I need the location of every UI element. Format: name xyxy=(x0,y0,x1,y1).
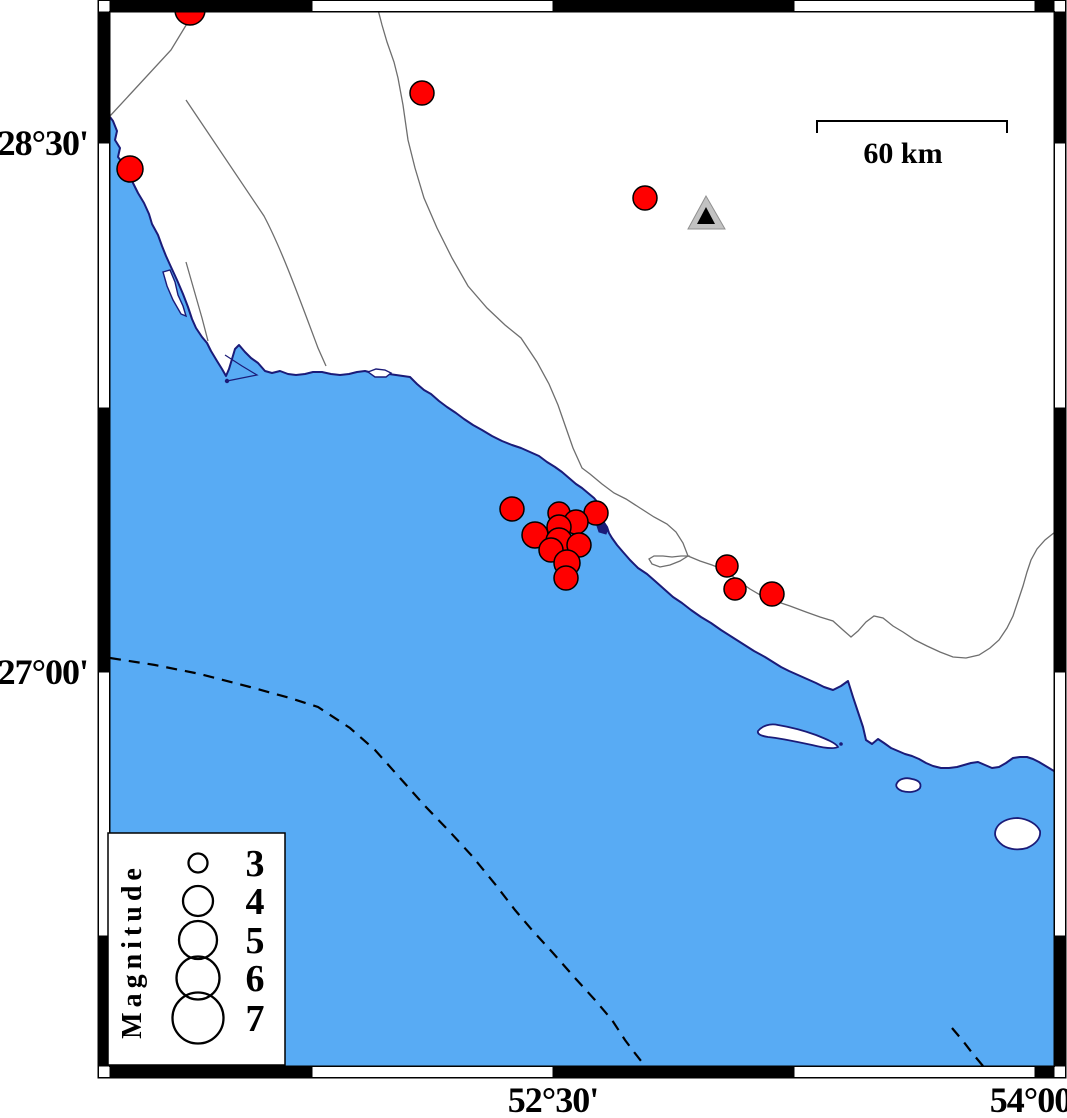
frame-segment-right xyxy=(1054,408,1066,672)
frame-segment-bottom xyxy=(312,1066,553,1078)
earthquake-marker xyxy=(716,555,738,577)
frame-segment-top xyxy=(1035,0,1054,12)
magnitude-legend: Magnitude34567 xyxy=(108,833,285,1065)
frame-segment-bottom xyxy=(794,1066,1035,1078)
island-small xyxy=(896,778,920,792)
earthquake-map: 28°30'27°00'52°30'54°00' 60 km Magnitude… xyxy=(0,0,1067,1118)
frame-segment-top xyxy=(794,0,1035,12)
earthquake-marker xyxy=(410,81,434,105)
frame-segment-top xyxy=(110,0,312,12)
legend-label-mag-3: 3 xyxy=(246,843,265,885)
frame-segment-left xyxy=(98,408,110,672)
axis-label-lat-27-00: 27°00' xyxy=(0,652,88,692)
axis-label-lat-28-30: 28°30' xyxy=(0,123,88,163)
frame-segment-top xyxy=(553,0,794,12)
earthquake-marker xyxy=(760,582,784,606)
frame-segment-right xyxy=(1054,143,1066,408)
earthquake-marker xyxy=(554,566,578,590)
scale-bar-label: 60 km xyxy=(863,137,942,170)
earthquake-marker xyxy=(724,578,746,600)
legend-title: Magnitude xyxy=(117,863,148,1039)
earthquake-marker xyxy=(117,156,143,182)
island-round xyxy=(995,818,1040,849)
legend-label-mag-4: 4 xyxy=(246,881,265,923)
frame-segment-bottom xyxy=(553,1066,794,1078)
axis-label-lon-54-00: 54°00' xyxy=(990,1080,1067,1118)
frame-segment-bottom xyxy=(110,1066,312,1078)
frame-corner xyxy=(1054,0,1066,12)
axis-label-lon-52-30: 52°30' xyxy=(508,1080,598,1118)
earthquake-marker xyxy=(500,497,524,521)
frame-segment-left xyxy=(98,12,110,143)
island-dot xyxy=(839,742,843,746)
legend-label-mag-6: 6 xyxy=(246,958,265,1000)
frame-segment-top xyxy=(312,0,553,12)
frame-corner xyxy=(1054,1066,1066,1078)
legend-label-mag-7: 7 xyxy=(246,998,265,1040)
frame-segment-right xyxy=(1054,672,1066,936)
frame-segment-left xyxy=(98,143,110,408)
earthquake-marker xyxy=(633,186,657,210)
legend-label-mag-5: 5 xyxy=(246,920,265,962)
frame-segment-bottom xyxy=(1035,1066,1054,1078)
frame-corner xyxy=(98,0,110,12)
frame-segment-right xyxy=(1054,12,1066,143)
seismicity-map-page: 28°30'27°00'52°30'54°00' 60 km Magnitude… xyxy=(0,0,1067,1118)
frame-corner xyxy=(98,1066,110,1078)
frame-segment-right xyxy=(1054,936,1066,1066)
